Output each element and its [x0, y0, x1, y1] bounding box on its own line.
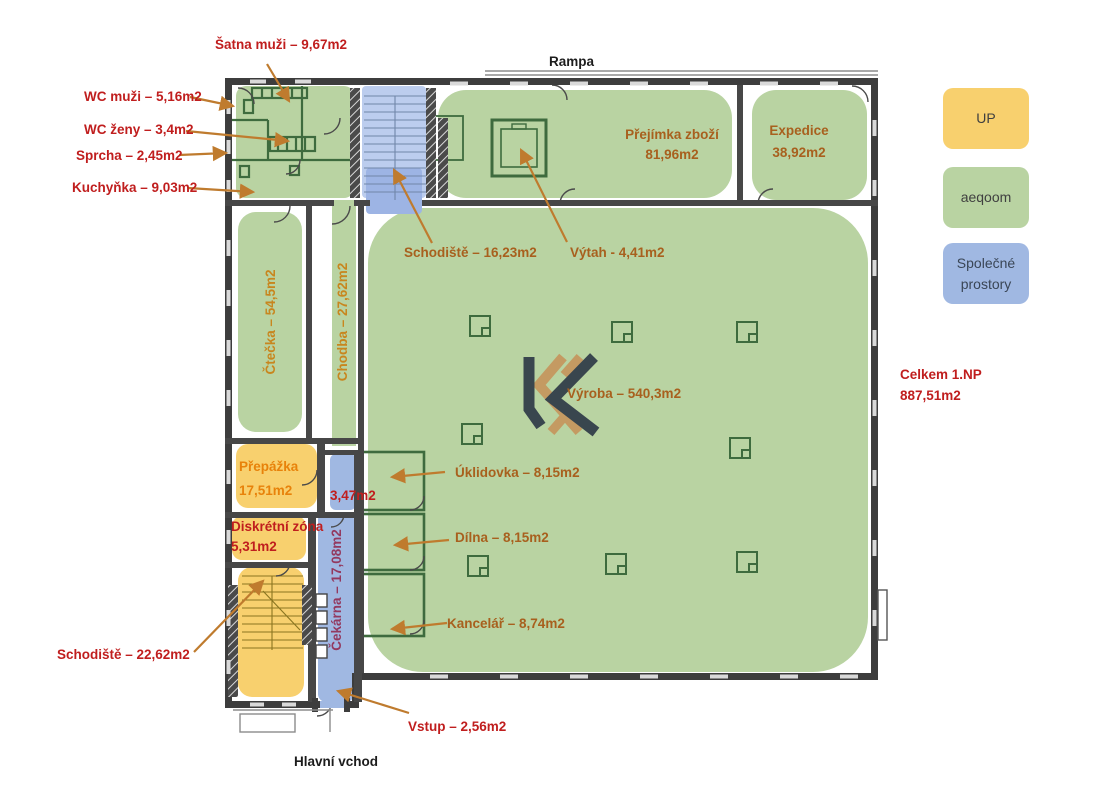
- label-chodba: Chodba – 27,62m2: [334, 222, 352, 422]
- label-wc-muzi: WC muži – 5,16m2: [84, 90, 202, 104]
- label-cekarna: Čekárna – 17,08m2: [328, 490, 346, 690]
- label-vstup: Vstup – 2,56m2: [408, 720, 506, 734]
- label-celkem-line1: Celkem 1.NP: [900, 368, 982, 382]
- label-sprcha: Sprcha – 2,45m2: [76, 149, 183, 163]
- label-uklidovka: Úklidovka – 8,15m2: [455, 466, 580, 480]
- label-vyroba: Výroba – 540,3m2: [567, 387, 681, 401]
- label-hlavni-vchod: Hlavní vchod: [294, 755, 378, 769]
- floor-plan-page: Šatna muži – 9,67m2 WC muži – 5,16m2 WC …: [0, 0, 1119, 789]
- legend-spolecne-label: Společné prostory: [951, 253, 1021, 294]
- label-dilna: Dílna – 8,15m2: [455, 531, 549, 545]
- label-prejimka-name: Přejímka zboží: [612, 128, 732, 142]
- label-kuchynka: Kuchyňka – 9,03m2: [72, 181, 197, 195]
- label-rampa: Rampa: [549, 55, 594, 69]
- legend-spolecne-swatch: Společné prostory: [943, 243, 1029, 304]
- label-satna-muzi: Šatna muži – 9,67m2: [215, 38, 347, 52]
- label-expedice-area: 38,92m2: [744, 146, 854, 160]
- label-celkem-line2: 887,51m2: [900, 389, 961, 403]
- label-expedice-name: Expedice: [744, 124, 854, 138]
- legend-aeqoom-swatch: aeqoom: [943, 167, 1029, 228]
- label-schodiste-top: Schodiště – 16,23m2: [404, 246, 537, 260]
- label-schodiste-bottom: Schodiště – 22,62m2: [57, 648, 190, 662]
- label-prejimka-area: 81,96m2: [612, 148, 732, 162]
- label-prepazka-area: 17,51m2: [239, 484, 292, 498]
- legend-aeqoom-label: aeqoom: [961, 187, 1012, 207]
- legend-up-swatch: UP: [943, 88, 1029, 149]
- label-kancelar: Kancelář – 8,74m2: [447, 617, 565, 631]
- label-diskretni-name: Diskrétní zóna: [231, 520, 323, 534]
- label-prepazka-name: Přepážka: [239, 460, 298, 474]
- label-wc-zeny: WC ženy – 3,4m2: [84, 123, 194, 137]
- label-ctecka: Čtečka – 54,5m2: [262, 222, 280, 422]
- label-vytah: Výtah - 4,41m2: [570, 246, 665, 260]
- label-diskretni-area: 5,31m2: [231, 540, 277, 554]
- legend-up-label: UP: [976, 108, 995, 128]
